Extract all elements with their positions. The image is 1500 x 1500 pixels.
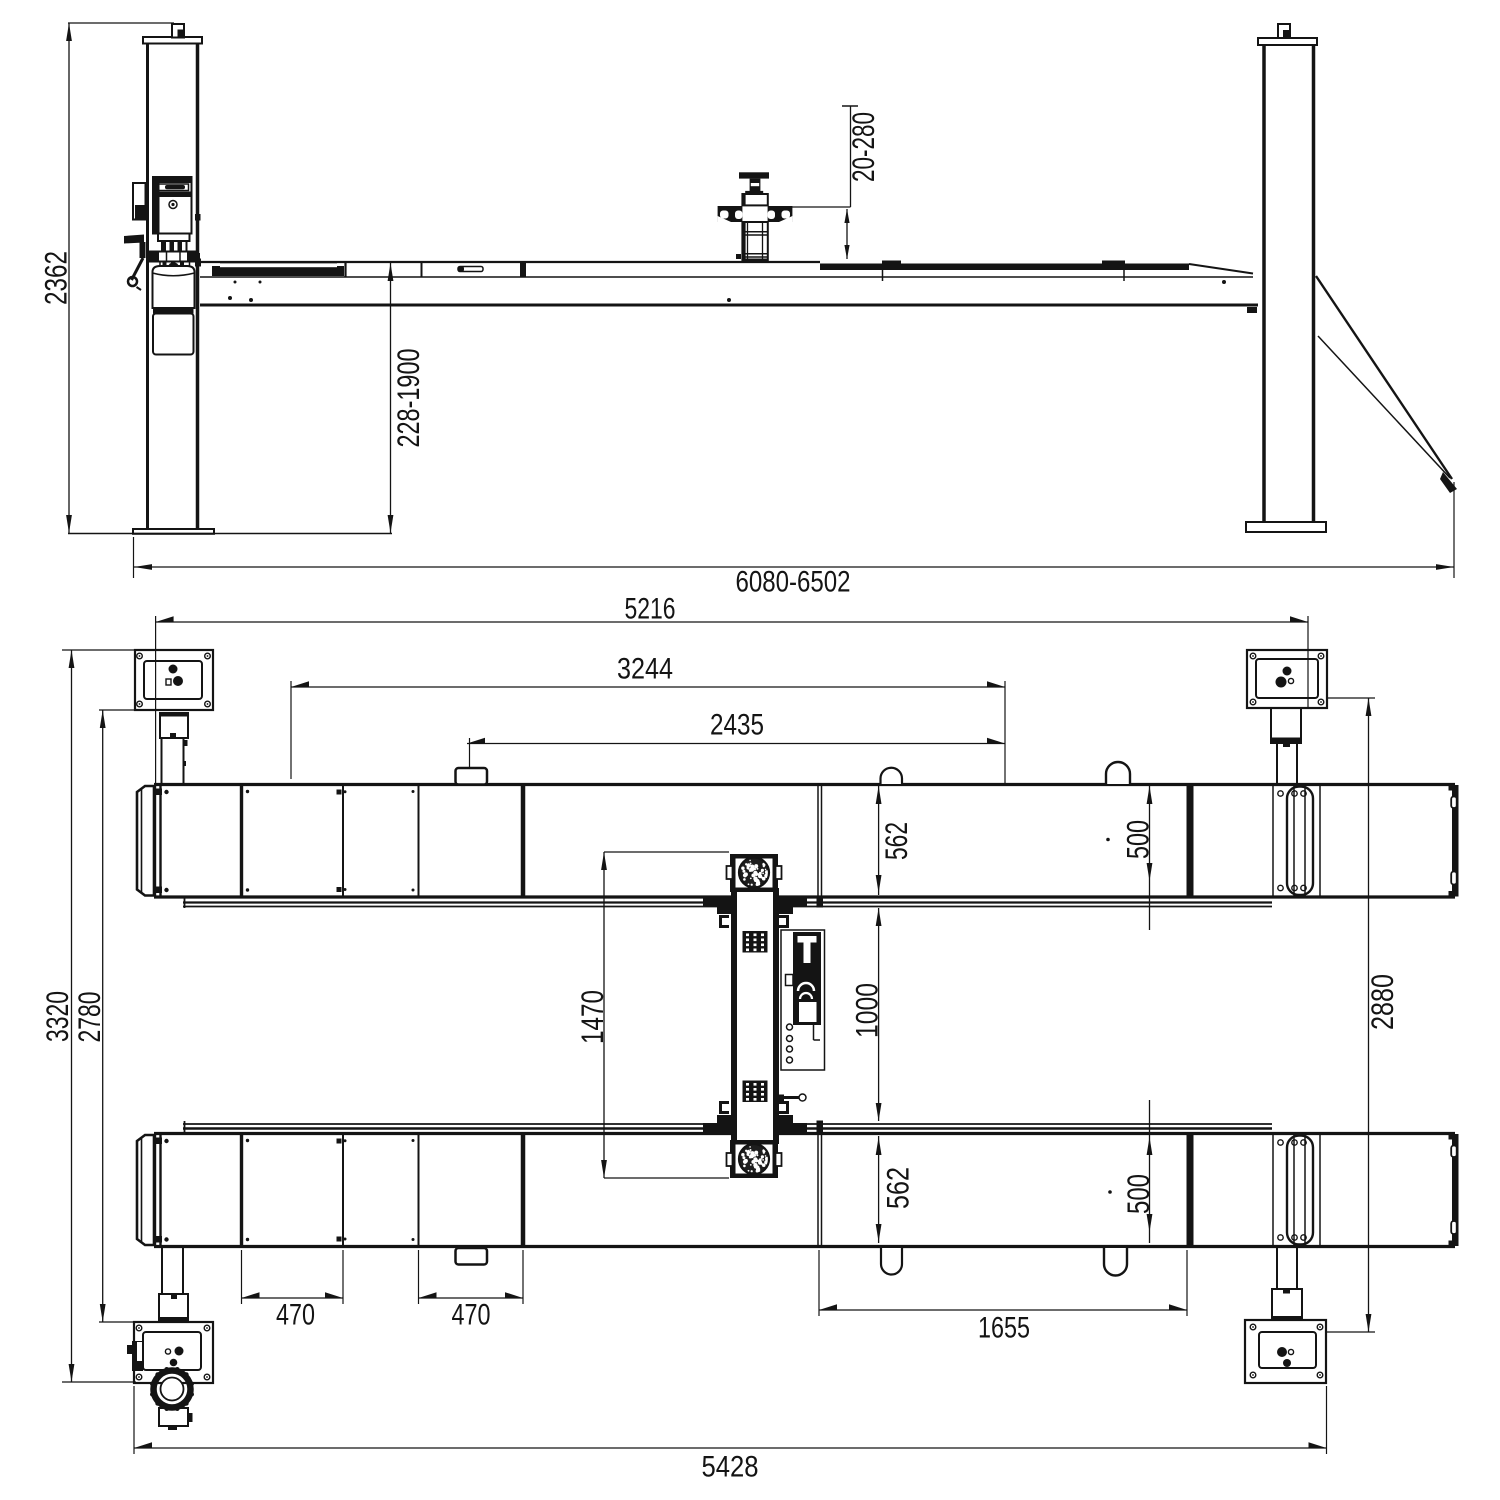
svg-text:1655: 1655 <box>978 1312 1030 1345</box>
svg-text:2780: 2780 <box>71 992 107 1043</box>
svg-text:470: 470 <box>276 1299 315 1332</box>
svg-text:2880: 2880 <box>1364 974 1400 1030</box>
svg-text:1000: 1000 <box>849 983 885 1038</box>
svg-text:5216: 5216 <box>625 593 676 626</box>
svg-text:5428: 5428 <box>702 1451 759 1484</box>
svg-text:1470: 1470 <box>574 990 610 1044</box>
svg-text:3320: 3320 <box>39 991 75 1042</box>
svg-text:562: 562 <box>878 822 914 860</box>
svg-text:20-280: 20-280 <box>845 112 881 182</box>
svg-text:2362: 2362 <box>38 251 74 305</box>
svg-text:2435: 2435 <box>710 709 764 742</box>
svg-text:500: 500 <box>1120 1174 1156 1214</box>
svg-text:562: 562 <box>880 1167 916 1209</box>
svg-text:228-1900: 228-1900 <box>390 349 426 448</box>
svg-text:470: 470 <box>452 1299 491 1332</box>
svg-text:3244: 3244 <box>617 653 673 686</box>
svg-text:500: 500 <box>1120 820 1156 859</box>
svg-text:6080-6502: 6080-6502 <box>736 566 851 599</box>
